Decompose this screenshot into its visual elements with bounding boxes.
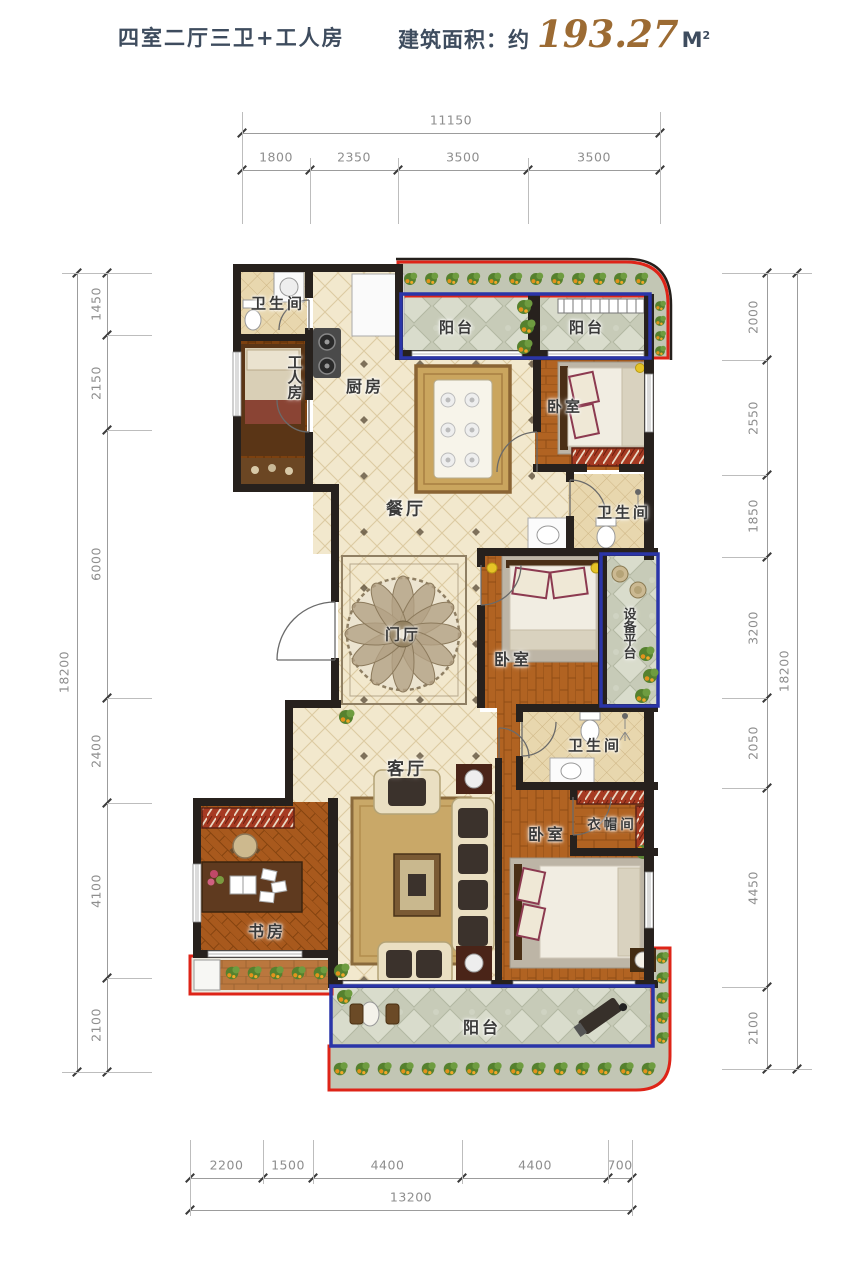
dim-line <box>242 112 243 224</box>
dim-value: 3500 <box>577 150 611 165</box>
room-label-study: 书房 <box>248 918 286 942</box>
dim-value: 4400 <box>371 1158 405 1173</box>
window <box>645 374 653 432</box>
dim-line <box>722 698 767 699</box>
dim-value: 2050 <box>746 726 761 760</box>
dim-value: 2100 <box>89 1008 104 1042</box>
room-label-bedroom-mid: 卧室 <box>494 646 532 670</box>
dim-value: 13200 <box>390 1190 432 1205</box>
dim-value: 4450 <box>746 871 761 905</box>
dim-value: 2200 <box>210 1158 244 1173</box>
dim-value: 3500 <box>446 150 480 165</box>
dim-line <box>722 987 767 988</box>
dim-line <box>107 803 152 804</box>
dim-value: 2550 <box>746 401 761 435</box>
dim-value: 1850 <box>746 499 761 533</box>
room-label-foyer: 门厅 <box>385 624 421 645</box>
dim-line <box>462 1140 463 1184</box>
dim-line <box>528 158 529 224</box>
dim-line <box>190 1210 632 1211</box>
dim-line <box>107 978 152 979</box>
dim-line <box>107 335 152 336</box>
dim-value: 1800 <box>259 150 293 165</box>
window <box>645 872 653 928</box>
dim-value: 1450 <box>89 287 104 321</box>
dim-value: 3200 <box>746 611 761 645</box>
dim-value: 700 <box>607 1158 632 1173</box>
dim-line <box>722 475 767 476</box>
room-label-worker-room: 工人房 <box>285 355 306 400</box>
dim-value: 2350 <box>337 150 371 165</box>
balcony-top-rack <box>558 299 644 313</box>
dim-value: 18200 <box>57 651 72 693</box>
room-label-equipment-platform: 设备平台 <box>619 607 638 659</box>
dim-line <box>62 273 152 274</box>
floor-plan-page: 四室二厅三卫+工人房 建筑面积：约 193.27 M2 <box>0 0 850 1275</box>
dim-line <box>62 1072 152 1073</box>
dim-line <box>242 170 660 171</box>
dim-line <box>263 1140 264 1184</box>
dim-line <box>767 273 768 1069</box>
room-label-kitchen: 厨房 <box>346 373 384 397</box>
dim-value: 2150 <box>89 366 104 400</box>
dim-line <box>190 1178 632 1179</box>
dim-line <box>77 273 78 1072</box>
room-label-balcony-bottom: 阳台 <box>463 1014 501 1038</box>
dim-line <box>107 430 152 431</box>
window <box>208 951 302 957</box>
room-label-bedroom-bottom: 卧室 <box>528 821 566 845</box>
dim-line <box>398 158 399 224</box>
room-label-bathroom-bottom: 卫生间 <box>568 735 622 756</box>
dim-line <box>722 273 812 274</box>
dim-line <box>190 1140 191 1216</box>
dim-line <box>313 1140 314 1184</box>
room-label-balcony-top-left: 阳台 <box>439 317 475 338</box>
room-label-bathroom-top: 卫生间 <box>251 293 305 314</box>
room-label-balcony-top-right: 阳台 <box>569 317 605 338</box>
room-label-bathroom-mid: 卫生间 <box>597 502 651 523</box>
dim-line <box>632 1140 633 1216</box>
floor-plan-canvas <box>0 0 850 1275</box>
dim-line <box>242 133 660 134</box>
dim-line <box>608 1140 609 1184</box>
room-label-bedroom-top: 卧室 <box>547 396 583 417</box>
dim-value: 4100 <box>89 874 104 908</box>
room-label-living-room: 客厅 <box>387 755 427 780</box>
window <box>233 352 241 416</box>
dim-value: 6000 <box>89 547 104 581</box>
dim-line <box>107 273 108 1072</box>
dining-table <box>416 366 510 492</box>
dim-line <box>660 112 661 224</box>
dim-value: 18200 <box>777 650 792 692</box>
dim-value: 11150 <box>430 113 472 128</box>
dim-line <box>107 698 152 699</box>
dim-value: 1500 <box>271 1158 305 1173</box>
dim-line <box>722 1069 812 1070</box>
dim-value: 4400 <box>518 1158 552 1173</box>
dim-line <box>722 788 767 789</box>
dim-line <box>310 158 311 224</box>
living-room-sofa-set <box>352 764 494 986</box>
dim-value: 2100 <box>746 1011 761 1045</box>
dim-line <box>797 273 798 1069</box>
room-label-cloakroom: 衣帽间 <box>587 813 637 833</box>
dim-value: 2400 <box>89 734 104 768</box>
window <box>193 864 201 922</box>
dim-value: 2000 <box>746 300 761 334</box>
bedroom-bottom-bed <box>510 845 656 972</box>
dim-line <box>722 360 767 361</box>
room-label-dining-room: 餐厅 <box>386 495 426 520</box>
dim-line <box>722 557 767 558</box>
